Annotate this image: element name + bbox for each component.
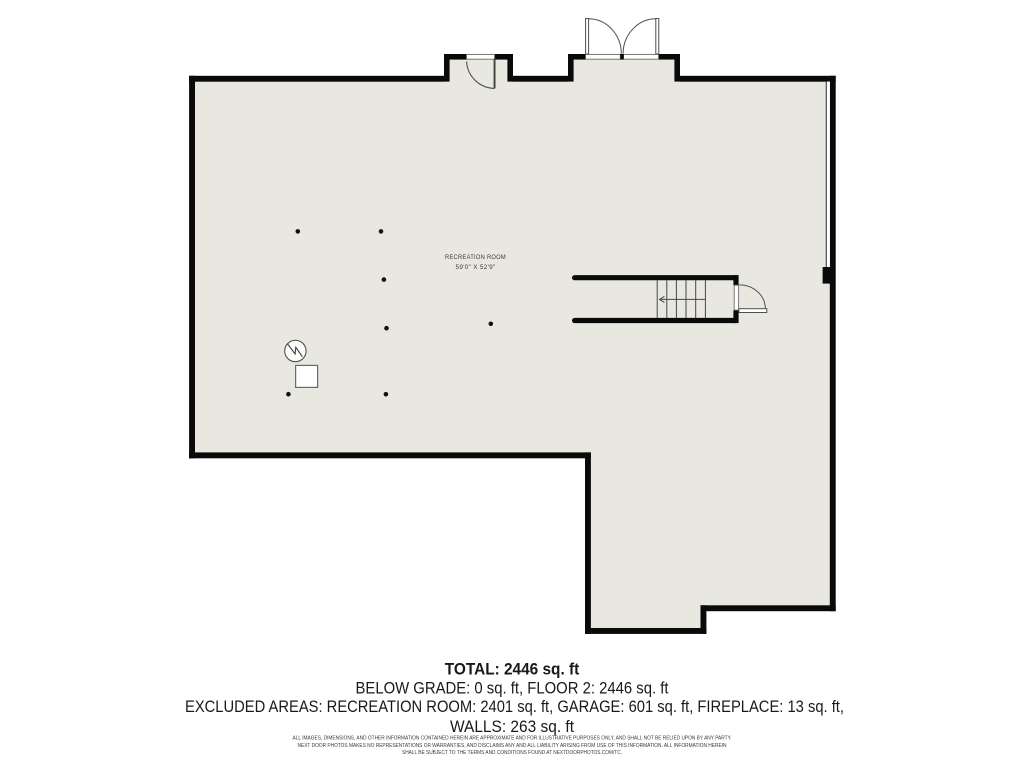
- svg-text:RECREATION ROOM: RECREATION ROOM: [445, 254, 506, 261]
- svg-text:59'0" X 52'9": 59'0" X 52'9": [456, 264, 496, 271]
- svg-text:SHALL BE SUBJECT TO THE TERMS: SHALL BE SUBJECT TO THE TERMS AND CONDIT…: [402, 750, 622, 756]
- svg-text:TOTAL: 2446 sq. ft: TOTAL: 2446 sq. ft: [445, 660, 580, 679]
- svg-text:WALLS: 263 sq. ft: WALLS: 263 sq. ft: [450, 717, 574, 736]
- svg-text:NEXT DOOR PHOTOS MAKES NO REPR: NEXT DOOR PHOTOS MAKES NO REPRESENTATION…: [298, 743, 727, 749]
- svg-text:ALL IMAGES, DIMENSIONS, AND OT: ALL IMAGES, DIMENSIONS, AND OTHER INFORM…: [293, 735, 732, 741]
- svg-text:BELOW GRADE: 0 sq. ft, FLOOR 2: BELOW GRADE: 0 sq. ft, FLOOR 2: 2446 sq.…: [356, 678, 669, 697]
- svg-text:EXCLUDED AREAS: RECREATION ROO: EXCLUDED AREAS: RECREATION ROOM: 2401 sq…: [185, 697, 844, 716]
